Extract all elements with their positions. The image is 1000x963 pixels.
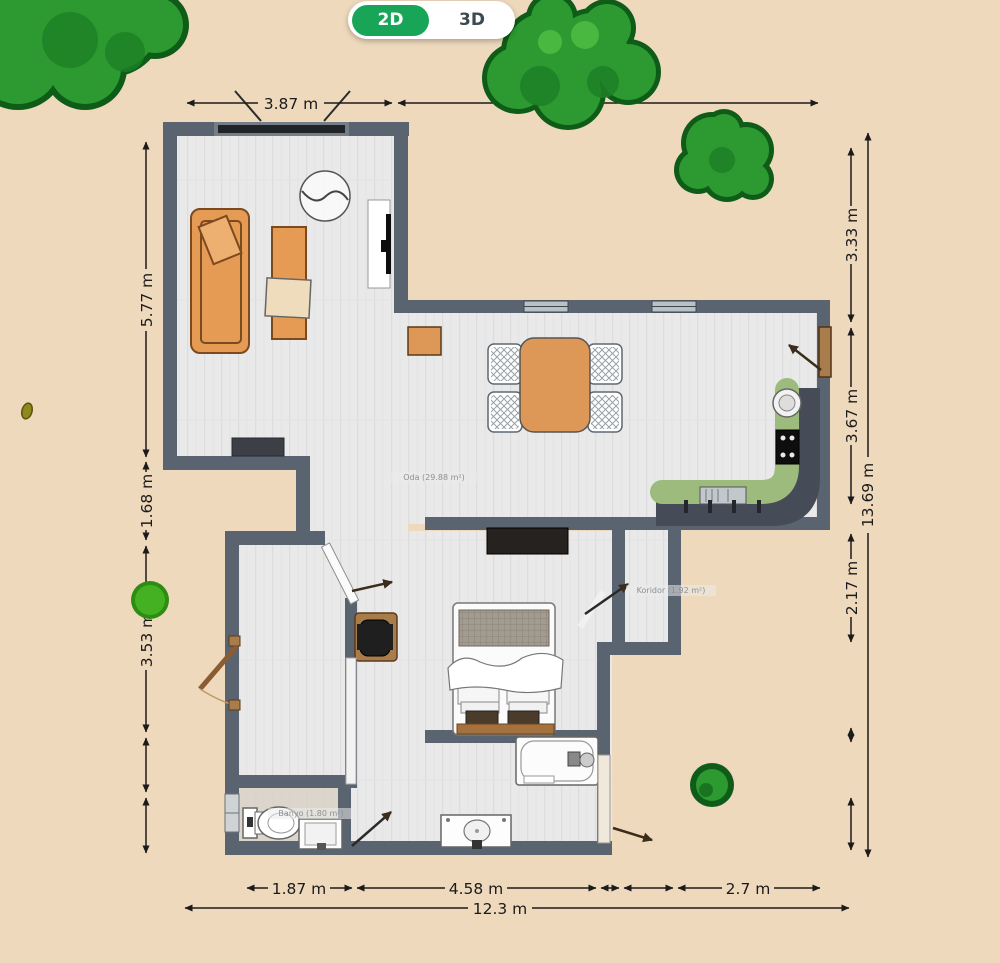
dim-right-room: 2.17 m bbox=[843, 561, 861, 616]
floorplanner-canvas: 3.87 m 5.77 m 1.68 m 3.53 m 3.33 m 3.67 … bbox=[0, 0, 1000, 963]
console-shelf[interactable] bbox=[232, 438, 284, 456]
room-label-corridor: Koridor (1.92 m²) bbox=[626, 585, 716, 596]
dim-bottom-total: 12.3 m bbox=[473, 900, 528, 918]
door-bath-exit[interactable] bbox=[598, 755, 652, 843]
dim-left-living: 5.77 m bbox=[138, 273, 156, 328]
view-2d-button[interactable]: 2D bbox=[352, 5, 429, 36]
vanity-sink[interactable] bbox=[441, 815, 511, 849]
tv-unit[interactable] bbox=[368, 200, 391, 288]
dim-left-hall: 3.53 m bbox=[138, 613, 156, 668]
dining-chair[interactable] bbox=[488, 344, 522, 384]
dining-chair[interactable] bbox=[488, 392, 522, 432]
ceiling-fan-icon[interactable] bbox=[300, 171, 350, 221]
bush-icon-bottom-right bbox=[690, 763, 734, 807]
bathtub[interactable] bbox=[516, 737, 598, 785]
dim-top-living: 3.87 m bbox=[264, 95, 319, 113]
dim-bottom-middle: 4.58 m bbox=[449, 880, 504, 898]
view-mode-toggle[interactable]: 2D 3D bbox=[348, 1, 515, 39]
cooktop[interactable] bbox=[776, 430, 799, 464]
dining-chair[interactable] bbox=[588, 392, 622, 432]
dim-right-kitchen: 3.67 m bbox=[843, 389, 861, 444]
window-dining-2[interactable] bbox=[652, 301, 696, 312]
window-dining-1[interactable] bbox=[524, 301, 568, 312]
leaf-icon bbox=[20, 402, 34, 420]
floor-plan: 3.87 m 5.77 m 1.68 m 3.53 m 3.33 m 3.67 … bbox=[0, 0, 1000, 963]
dining-chair[interactable] bbox=[588, 344, 622, 384]
coffee-table[interactable] bbox=[265, 227, 311, 339]
bed[interactable] bbox=[448, 603, 563, 735]
bush-icon-left bbox=[131, 581, 169, 619]
dim-right-top: 3.33 m bbox=[843, 208, 861, 263]
headboard bbox=[459, 610, 549, 646]
room-label-bathroom: Banyo (1.80 m²) bbox=[268, 808, 354, 819]
sliding-door[interactable] bbox=[346, 658, 356, 784]
view-3d-button[interactable]: 3D bbox=[429, 10, 515, 30]
tree-icon-top-left bbox=[0, 0, 189, 110]
dishwasher[interactable] bbox=[700, 487, 746, 504]
wc-sink[interactable] bbox=[299, 819, 342, 850]
dim-right-total: 13.69 m bbox=[859, 463, 877, 527]
dim-bottom-right: 2.7 m bbox=[726, 880, 771, 898]
wall-cabinet[interactable] bbox=[408, 327, 441, 355]
window-wc[interactable] bbox=[225, 794, 239, 832]
desk-chair[interactable] bbox=[355, 613, 397, 661]
tree-icon-right bbox=[674, 109, 774, 202]
dining-table[interactable] bbox=[520, 338, 590, 432]
dim-left-step: 1.68 m bbox=[138, 474, 156, 529]
sofa[interactable] bbox=[191, 209, 249, 353]
room-label-living: Oda (29.88 m²) bbox=[391, 472, 477, 483]
dim-bottom-wc: 1.87 m bbox=[272, 880, 327, 898]
dresser[interactable] bbox=[487, 528, 568, 554]
